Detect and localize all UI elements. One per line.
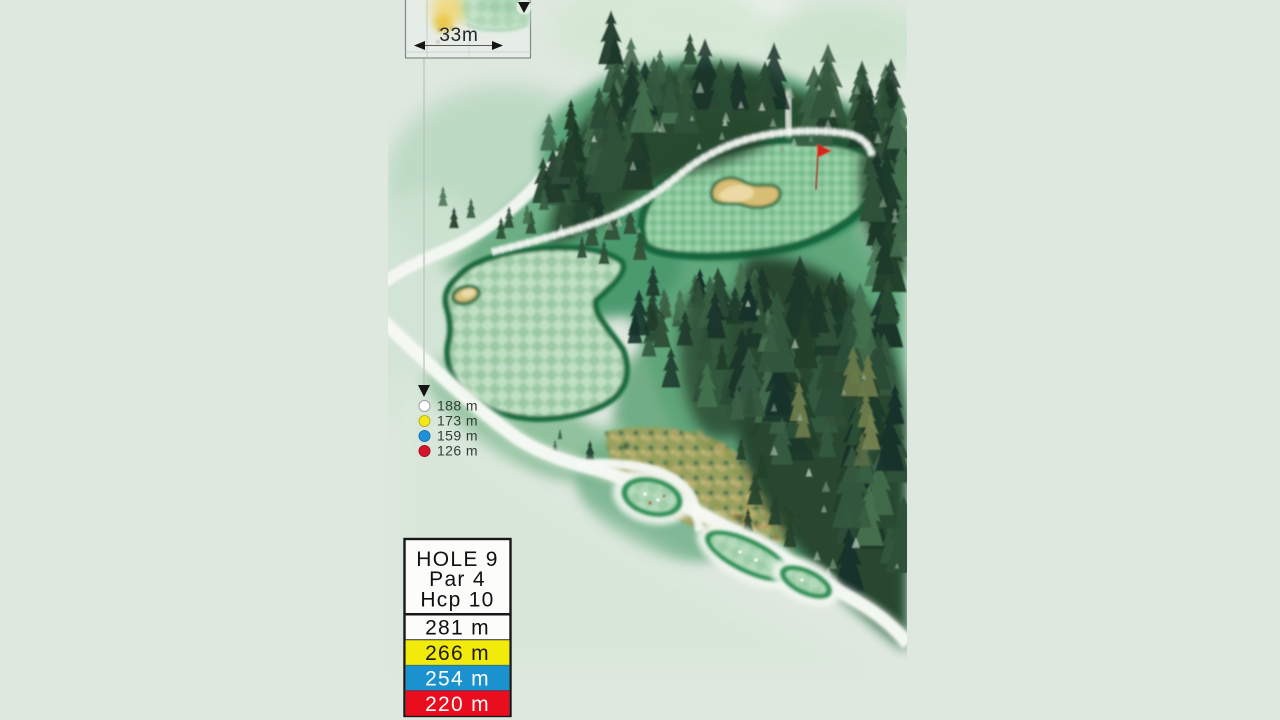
- svg-text:33m: 33m: [439, 25, 478, 46]
- svg-text:188 m: 188 m: [437, 398, 478, 414]
- svg-text:173 m: 173 m: [437, 413, 478, 429]
- svg-text:220 m: 220 m: [425, 693, 490, 716]
- svg-text:126 m: 126 m: [437, 443, 478, 459]
- svg-text:281 m: 281 m: [425, 617, 490, 640]
- svg-text:254 m: 254 m: [425, 668, 490, 691]
- svg-text:266 m: 266 m: [425, 642, 490, 665]
- svg-text:Hcp 10: Hcp 10: [420, 589, 494, 612]
- svg-text:159 m: 159 m: [437, 428, 478, 444]
